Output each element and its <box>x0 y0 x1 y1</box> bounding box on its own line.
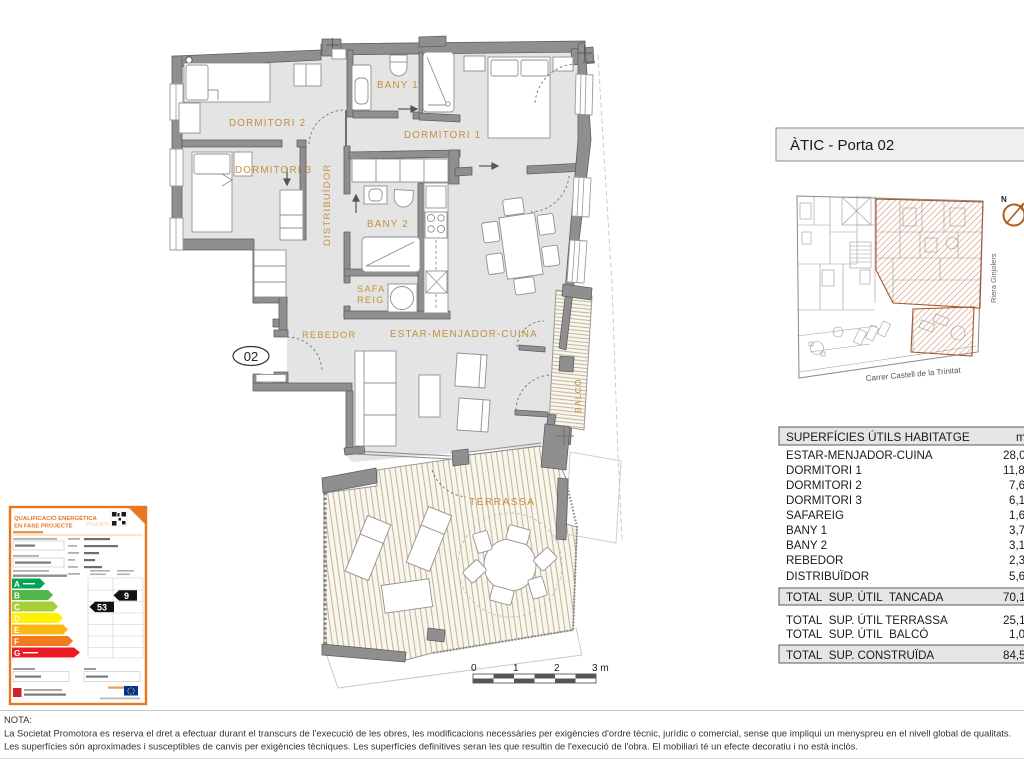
svg-text:DORMITORI 2: DORMITORI 2 <box>786 479 862 492</box>
svg-text:ESTAR-MENJADOR-CUINA: ESTAR-MENJADOR-CUINA <box>390 329 538 340</box>
svg-text:C: C <box>14 603 20 612</box>
svg-text:ÀTIC - Porta 02: ÀTIC - Porta 02 <box>790 137 894 154</box>
svg-text:TOTAL SUP. CONSTRUÏDA: TOTAL SUP. CONSTRUÏDA <box>786 649 934 662</box>
svg-text:TOTAL SUP. ÚTIL TERRASSA: TOTAL SUP. ÚTIL TERRASSA <box>786 614 948 627</box>
svg-text:SAFAREIG: SAFAREIG <box>786 509 844 522</box>
svg-text:ESTAR-MENJADOR-CUINA: ESTAR-MENJADOR-CUINA <box>786 449 933 462</box>
svg-text:1,6: 1,6 <box>1009 509 1024 522</box>
svg-text:N: N <box>1001 195 1007 204</box>
svg-text:Les superfícies són aproximade: Les superfícies són aproximades i suscep… <box>4 741 858 752</box>
svg-text:SUPERFÍCIES ÚTILS HABITATGE: SUPERFÍCIES ÚTILS HABITATGE <box>786 430 970 444</box>
svg-text:F: F <box>14 637 19 646</box>
svg-text:53: 53 <box>97 603 107 613</box>
svg-text:3 m: 3 m <box>592 663 609 674</box>
svg-text:Riera Ginjolers: Riera Ginjolers <box>989 253 998 303</box>
svg-text:02: 02 <box>244 349 258 364</box>
svg-text:BANY 1: BANY 1 <box>786 524 827 537</box>
svg-text:6,1: 6,1 <box>1009 494 1024 507</box>
svg-text:BALCÓ: BALCÓ <box>573 378 583 413</box>
svg-text:2,3: 2,3 <box>1009 554 1024 567</box>
svg-text:EN FASE PROJECTE: EN FASE PROJECTE <box>14 524 73 530</box>
svg-text:SAFA: SAFA <box>357 284 386 294</box>
svg-text:BANY 2: BANY 2 <box>786 539 827 552</box>
svg-text:11,8: 11,8 <box>1003 464 1024 477</box>
svg-text:NOTA:: NOTA: <box>4 714 32 725</box>
svg-text:9: 9 <box>124 591 129 601</box>
svg-text:84,5: 84,5 <box>1003 649 1024 662</box>
svg-text:70,1: 70,1 <box>1003 591 1024 604</box>
svg-text:G: G <box>14 649 20 658</box>
svg-text:Carrer Castell de la Trinitat: Carrer Castell de la Trinitat <box>865 366 961 383</box>
svg-text:DORMITORI 3: DORMITORI 3 <box>786 494 862 507</box>
svg-text:E: E <box>14 626 20 635</box>
svg-text:DISTRIBUÏDOR: DISTRIBUÏDOR <box>322 164 333 247</box>
svg-text:TOTAL SUP. ÚTIL TANCADA: TOTAL SUP. ÚTIL TANCADA <box>786 591 944 604</box>
svg-text:A: A <box>14 580 20 589</box>
svg-text:DORMITORI 1: DORMITORI 1 <box>786 464 862 477</box>
svg-text:BANY 2: BANY 2 <box>367 219 409 230</box>
svg-text:5,6: 5,6 <box>1009 570 1024 583</box>
svg-text:REBEDOR: REBEDOR <box>786 554 843 567</box>
svg-text:DORMITORI 1: DORMITORI 1 <box>404 130 481 141</box>
svg-text:BANY 1: BANY 1 <box>377 80 419 91</box>
svg-text:QUALIFICACIÓ ENERGÈTICA: QUALIFICACIÓ ENERGÈTICA <box>14 514 98 522</box>
svg-text:2: 2 <box>554 663 560 674</box>
svg-text:1: 1 <box>513 663 519 674</box>
svg-text:1,0: 1,0 <box>1009 628 1024 641</box>
svg-text:m: m <box>1016 430 1024 444</box>
svg-text:D: D <box>14 614 20 623</box>
svg-text:7,6: 7,6 <box>1009 479 1024 492</box>
svg-text:ETIQUETA: ETIQUETA <box>86 522 110 528</box>
svg-text:TOTAL SUP. ÚTIL BALCÓ: TOTAL SUP. ÚTIL BALCÓ <box>786 628 928 641</box>
svg-text:0: 0 <box>471 663 477 674</box>
svg-text:DORMITORI 2: DORMITORI 2 <box>229 118 306 129</box>
svg-text:3,1: 3,1 <box>1009 539 1024 552</box>
svg-text:DORMITORI 3: DORMITORI 3 <box>235 165 312 176</box>
svg-text:TERRASSA: TERRASSA <box>469 496 535 508</box>
svg-text:28,0: 28,0 <box>1003 449 1024 462</box>
svg-text:B: B <box>14 591 20 600</box>
svg-text:DISTRIBUÏDOR: DISTRIBUÏDOR <box>786 570 869 583</box>
svg-text:La Societat Promotora es reser: La Societat Promotora es reserva el dret… <box>4 728 1011 739</box>
svg-text:REBEDOR: REBEDOR <box>302 330 356 340</box>
svg-text:25,1: 25,1 <box>1003 614 1024 627</box>
svg-text:REIG: REIG <box>357 295 385 305</box>
svg-text:3,7: 3,7 <box>1009 524 1024 537</box>
